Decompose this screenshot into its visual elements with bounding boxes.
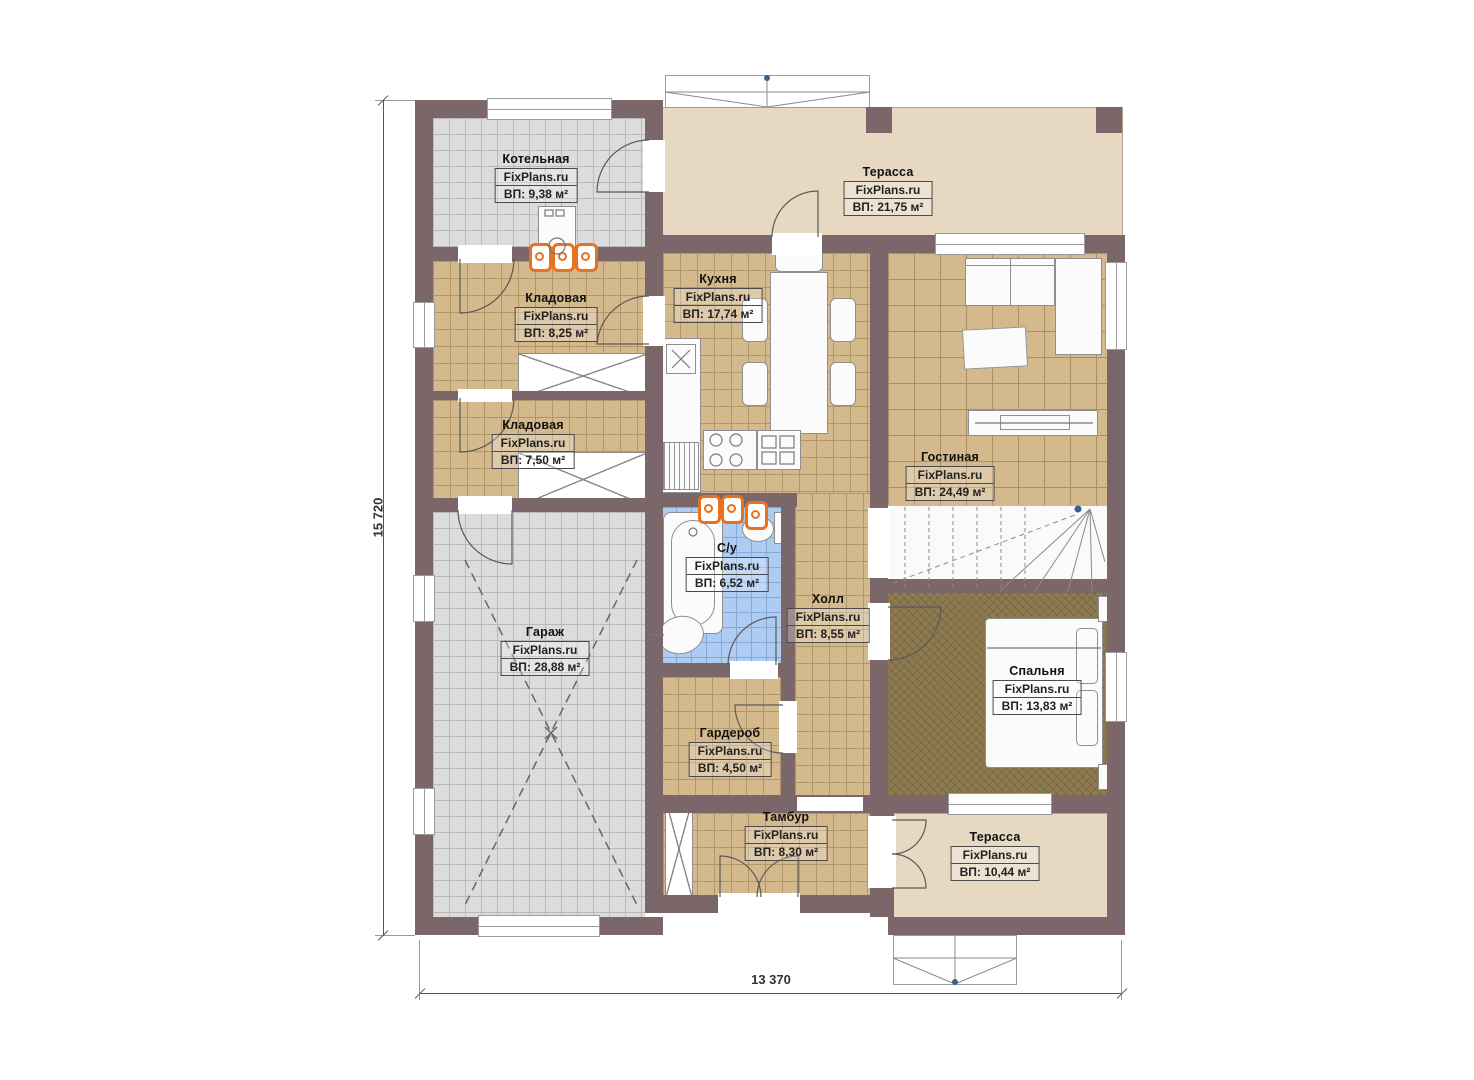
room-area: ВП: 8,25 м² (516, 325, 597, 341)
room-info-box: FixPlans.ru ВП: 13,83 м² (993, 680, 1082, 715)
room-label-wardrobe: Гардероб FixPlans.ru ВП: 4,50 м² (689, 726, 772, 777)
chair (830, 298, 856, 342)
window (413, 302, 435, 348)
room-name: Гостиная (906, 450, 995, 464)
room-brand: FixPlans.ru (690, 743, 771, 760)
door-opening (643, 296, 665, 346)
wall (870, 253, 888, 505)
passage-opening (868, 508, 890, 578)
room-area: ВП: 13,83 м² (994, 698, 1081, 714)
room-area: ВП: 24,49 м² (907, 484, 994, 500)
window (1105, 262, 1127, 350)
radiator-icon (529, 243, 552, 272)
room-area: ВП: 8,55 м² (788, 626, 869, 642)
garage-door (478, 915, 600, 937)
room-name: Тамбур (745, 810, 828, 824)
door-opening (772, 233, 822, 255)
chair (742, 362, 768, 406)
room-info-box: FixPlans.ru ВП: 4,50 м² (689, 742, 772, 777)
terrace-column (866, 107, 892, 133)
room-label-storage-1: Кладовая FixPlans.ru ВП: 8,25 м² (515, 291, 598, 342)
room-info-box: FixPlans.ru ВП: 8,30 м² (745, 826, 828, 861)
window (413, 788, 435, 835)
door-opening (718, 893, 800, 915)
door-opening (643, 140, 665, 192)
entrance-steps-bottom (893, 935, 1017, 985)
radiator-icon (698, 495, 721, 524)
room-info-box: FixPlans.ru ВП: 21,75 м² (844, 181, 933, 216)
door-opening (458, 245, 512, 263)
room-name: Спальня (993, 664, 1082, 678)
window (948, 793, 1052, 815)
window (487, 98, 612, 120)
room-area: ВП: 9,38 м² (496, 186, 577, 202)
room-area: ВП: 6,52 м² (687, 575, 768, 591)
room-info-box: FixPlans.ru ВП: 8,25 м² (515, 307, 598, 342)
room-name: С/у (686, 541, 769, 555)
room-label-bedroom: Спальня FixPlans.ru ВП: 13,83 м² (993, 664, 1082, 715)
room-area: ВП: 10,44 м² (952, 864, 1039, 880)
closet-x (665, 800, 693, 898)
room-brand: FixPlans.ru (502, 642, 589, 659)
room-name: Кухня (674, 272, 763, 286)
radiator-icon (721, 495, 744, 524)
tv (1000, 415, 1070, 430)
room-label-boiler: Котельная FixPlans.ru ВП: 9,38 м² (495, 152, 578, 203)
door-opening (458, 389, 512, 402)
radiator-icon (575, 243, 598, 272)
room-name: Гардероб (689, 726, 772, 740)
dimension-line-bottom (420, 993, 1122, 994)
room-area: ВП: 4,50 м² (690, 760, 771, 776)
floor-plan-canvas: Котельная FixPlans.ru ВП: 9,38 м² Терасс… (0, 0, 1474, 1080)
room-label-garage: Гараж FixPlans.ru ВП: 28,88 м² (501, 625, 590, 676)
door-opening (868, 603, 890, 660)
room-name: Терасса (844, 165, 933, 179)
room-label-hall: Холл FixPlans.ru ВП: 8,55 м² (787, 592, 870, 643)
fridge (663, 442, 699, 490)
dining-table (770, 272, 828, 434)
radiator-icon (552, 243, 575, 272)
room-info-box: FixPlans.ru ВП: 9,38 м² (495, 168, 578, 203)
room-brand: FixPlans.ru (788, 609, 869, 626)
door-opening (730, 661, 778, 679)
room-label-living-room: Гостиная FixPlans.ru ВП: 24,49 м² (906, 450, 995, 501)
room-name: Терасса (951, 830, 1040, 844)
room-info-box: FixPlans.ru ВП: 28,88 м² (501, 641, 590, 676)
door-opening (458, 496, 512, 514)
room-info-box: FixPlans.ru ВП: 17,74 м² (674, 288, 763, 323)
room-area: ВП: 8,30 м² (746, 844, 827, 860)
dishwasher (757, 430, 801, 470)
room-info-box: FixPlans.ru ВП: 7,50 м² (492, 434, 575, 469)
kitchen-sink (666, 344, 696, 374)
room-brand: FixPlans.ru (907, 467, 994, 484)
room-name: Гараж (501, 625, 590, 639)
radiator-icon (745, 501, 768, 530)
room-area: ВП: 7,50 м² (493, 452, 574, 468)
room-name: Котельная (495, 152, 578, 166)
room-brand: FixPlans.ru (994, 681, 1081, 698)
terrace-column (1096, 107, 1122, 133)
chair (830, 362, 856, 406)
wall (884, 579, 1107, 593)
room-label-terrace-bot: Терасса FixPlans.ru ВП: 10,44 м² (951, 830, 1040, 881)
window (1105, 652, 1127, 722)
room-brand: FixPlans.ru (845, 182, 932, 199)
room-name: Холл (787, 592, 870, 606)
room-label-bathroom: С/у FixPlans.ru ВП: 6,52 м² (686, 541, 769, 592)
room-name: Кладовая (515, 291, 598, 305)
room-info-box: FixPlans.ru ВП: 8,55 м² (787, 608, 870, 643)
room-brand: FixPlans.ru (496, 169, 577, 186)
room-garage-floor (433, 512, 645, 917)
room-name: Кладовая (492, 418, 575, 432)
room-area: ВП: 17,74 м² (675, 306, 762, 322)
room-brand: FixPlans.ru (516, 308, 597, 325)
door-opening (868, 816, 896, 888)
wall (888, 917, 1125, 935)
room-brand: FixPlans.ru (952, 847, 1039, 864)
window (935, 233, 1085, 255)
wall (415, 498, 663, 512)
dimension-value-bottom: 13 370 (731, 972, 811, 987)
room-area: ВП: 28,88 м² (502, 659, 589, 675)
window (413, 575, 435, 622)
coffee-table (962, 326, 1028, 369)
room-brand: FixPlans.ru (675, 289, 762, 306)
entrance-steps-top (665, 75, 870, 108)
room-info-box: FixPlans.ru ВП: 6,52 м² (686, 557, 769, 592)
room-info-box: FixPlans.ru ВП: 10,44 м² (951, 846, 1040, 881)
room-area: ВП: 21,75 м² (845, 199, 932, 215)
door-opening (779, 701, 797, 753)
room-label-kitchen: Кухня FixPlans.ru ВП: 17,74 м² (674, 272, 763, 323)
room-brand: FixPlans.ru (746, 827, 827, 844)
room-label-storage-2: Кладовая FixPlans.ru ВП: 7,50 м² (492, 418, 575, 469)
sofa-chaise (1055, 258, 1102, 355)
room-brand: FixPlans.ru (687, 558, 768, 575)
room-hall-floor (795, 493, 870, 795)
room-info-box: FixPlans.ru ВП: 24,49 м² (906, 466, 995, 501)
dimension-value-left: 15 720 (371, 478, 386, 558)
room-brand: FixPlans.ru (493, 435, 574, 452)
stove (703, 430, 757, 470)
room-label-vestibule: Тамбур FixPlans.ru ВП: 8,30 м² (745, 810, 828, 861)
room-label-terrace-top: Терасса FixPlans.ru ВП: 21,75 м² (844, 165, 933, 216)
passage-opening (797, 797, 863, 811)
